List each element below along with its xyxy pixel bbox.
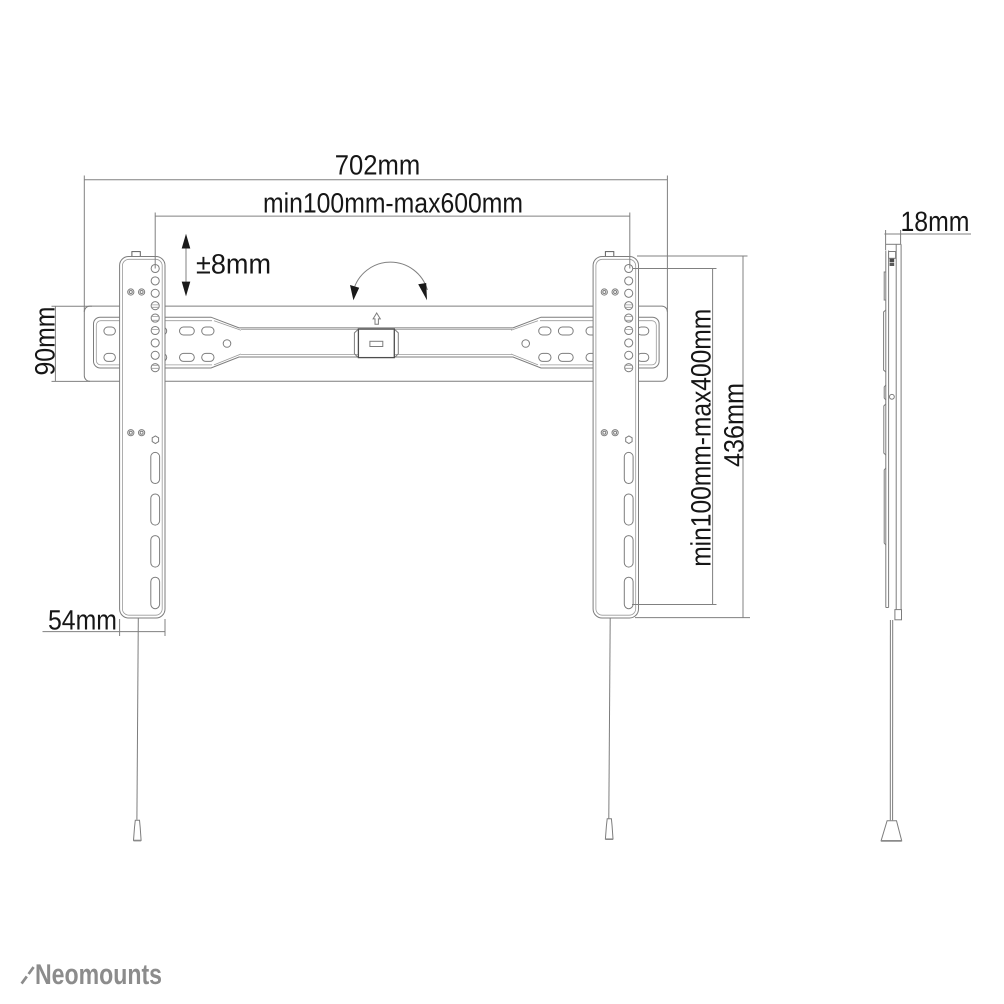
svg-text:min100mm-max400mm: min100mm-max400mm xyxy=(686,309,717,567)
svg-text:18mm: 18mm xyxy=(901,206,970,237)
svg-text:90mm: 90mm xyxy=(29,307,60,376)
svg-text:Neomounts: Neomounts xyxy=(35,959,162,991)
svg-text:min100mm-max600mm: min100mm-max600mm xyxy=(263,187,523,218)
svg-text:54mm: 54mm xyxy=(48,605,117,636)
svg-text:±8mm: ±8mm xyxy=(196,249,271,280)
svg-text:436mm: 436mm xyxy=(719,383,750,467)
svg-text:702mm: 702mm xyxy=(335,150,421,181)
